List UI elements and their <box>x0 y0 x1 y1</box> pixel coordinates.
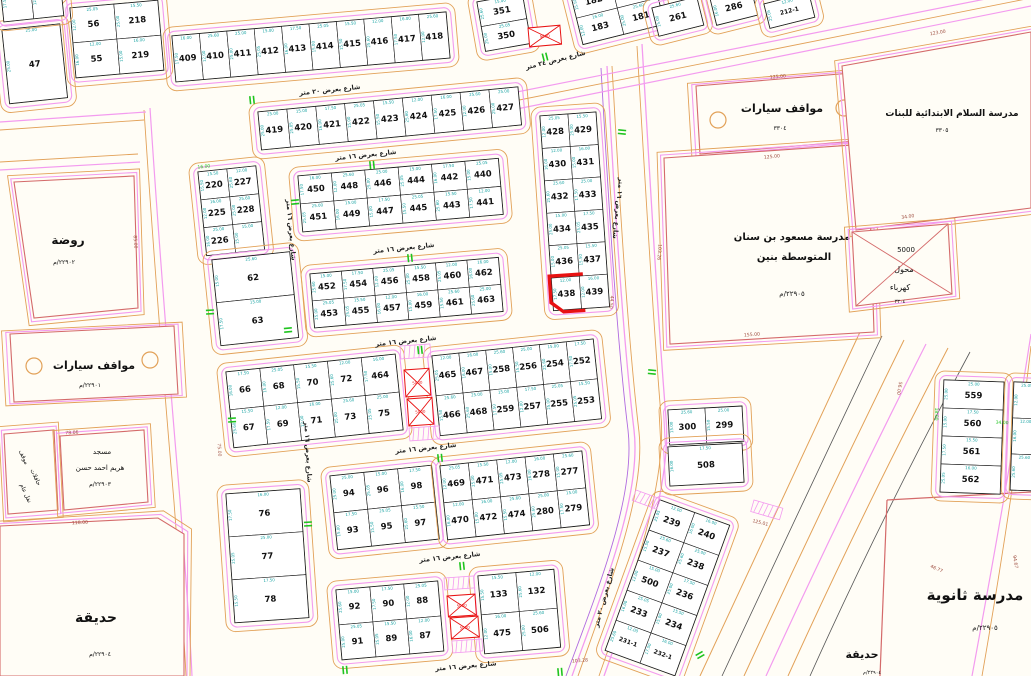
transformer-box: 5000 <box>450 616 479 639</box>
landmark-label: هريم احمد حسن <box>76 464 125 472</box>
plot-77[interactable]: 25.0025.0577 <box>229 532 306 580</box>
dim-label: 16.00 <box>399 15 411 21</box>
landmark-label: مدرسة ثانوية <box>927 586 1024 604</box>
plot-299[interactable]: 25.0015.50299 <box>705 406 744 443</box>
plot-number: 78 <box>264 594 277 605</box>
plot-446[interactable]: 25.0025.00446 <box>365 167 401 198</box>
plot-413[interactable]: 17.5016.00413 <box>282 24 313 72</box>
plot-220[interactable]: 15.5015.50220 <box>198 169 230 200</box>
landmark-label: ٣٣٠٤ <box>774 125 787 132</box>
plot-474[interactable]: 25.6015.50474 <box>501 494 533 534</box>
landmark-label: ٢٢٩٠٥/م <box>779 290 805 298</box>
plot-91[interactable]: 25.0525.0091 <box>339 622 376 660</box>
plot-87[interactable]: 12.0016.0087 <box>407 616 444 654</box>
plot-72[interactable]: 12.0025.6072 <box>327 358 365 399</box>
plot-number: 95 <box>380 521 393 532</box>
plot-255[interactable]: 25.0525.00255 <box>544 382 575 425</box>
landmark-transformer-station[interactable]: 5000محولكهرباء٣٣٠٤ <box>844 218 959 312</box>
plot-number: 422 <box>352 116 371 128</box>
plot-number: 473 <box>504 472 523 484</box>
plot-number: 457 <box>383 303 402 315</box>
dim-label: 25.00 <box>376 169 388 175</box>
plot-420[interactable]: 15.0025.05420 <box>287 106 320 147</box>
dim-label: 17.50 <box>699 445 711 451</box>
plot-444[interactable]: 15.0025.05444 <box>398 164 434 195</box>
dim-label: 15.50 <box>233 595 239 607</box>
plot-442[interactable]: 17.5016.00442 <box>431 161 467 192</box>
plot-number: 71 <box>310 415 323 426</box>
plot-417[interactable]: 16.0017.50417 <box>391 14 422 62</box>
plot-434[interactable]: 15.0025.00434 <box>547 211 577 245</box>
dim-label: 25.60 <box>1019 455 1031 460</box>
plot-number: 453 <box>320 308 339 320</box>
plot-435[interactable]: 17.5025.05435 <box>575 209 605 243</box>
plot-475[interactable]: 16.0012.00475 <box>481 612 522 654</box>
dim-label: 17.50 <box>290 25 302 31</box>
plot-69[interactable]: 12.0017.5069 <box>264 403 302 444</box>
plot-number: 560 <box>963 419 981 430</box>
dim-label: 12.00 <box>1013 394 1018 406</box>
plot-number: 256 <box>519 361 538 373</box>
plot-457[interactable]: 12.0016.00457 <box>375 293 409 323</box>
plot-280[interactable]: 25.0025.60280 <box>529 491 561 531</box>
dim-label: 15.00 <box>262 27 274 33</box>
plot-number: 92 <box>348 602 361 613</box>
plot-278[interactable]: 16.0016.00278 <box>525 454 557 494</box>
dim-label: 25.60 <box>337 601 343 613</box>
plot-253[interactable]: 15.5025.05253 <box>570 379 601 422</box>
landmark-parking-west[interactable]: مواقف سيارات٢٢٩٠١/م <box>2 322 187 406</box>
green-dim: 18.00 <box>933 408 939 421</box>
dim-label: 12.00 <box>372 18 384 24</box>
plot-89[interactable]: 15.5025.0589 <box>373 619 410 657</box>
plot-number: 508 <box>697 460 715 471</box>
dim-label: 25.05 <box>322 299 334 305</box>
landmark-garden-southwest[interactable]: حديقة٢٢٩٠٤/م <box>0 511 192 676</box>
plot-number: 420 <box>294 122 313 134</box>
landmark-label: كهرباء <box>890 283 911 292</box>
plot-number: 561 <box>962 447 980 458</box>
transformer-box: 5000 <box>528 25 562 47</box>
plot-470[interactable]: 12.0016.00470 <box>444 500 476 540</box>
dim-label: 25.00 <box>365 178 371 190</box>
plot-415[interactable]: 15.5015.50415 <box>336 19 367 67</box>
plot-number: 458 <box>412 273 431 285</box>
plot-472[interactable]: 16.0015.00472 <box>472 497 504 537</box>
map-canvas[interactable]: روضة٢٢٩٠٢/ممواقف سيارات٢٢٩٠١/مموقفحافلات… <box>0 0 1031 676</box>
plot-93[interactable]: 17.5015.0093 <box>334 509 372 549</box>
dim-label: 25.05 <box>230 552 236 564</box>
plot-number: 471 <box>475 475 494 487</box>
plot-432[interactable]: 25.6025.60432 <box>545 179 575 213</box>
dim-label: 12.00 <box>551 147 563 153</box>
plot-464[interactable]: 16.0017.50464 <box>361 354 399 395</box>
plot-number: 219 <box>131 50 150 62</box>
dim-label: 12.00 <box>529 571 541 577</box>
dim-label: 25.05 <box>86 6 98 12</box>
dim-label: 17.50 <box>378 196 390 202</box>
plot-47[interactable]: 25.0025.0047 <box>2 24 67 104</box>
dim-label: 12.00 <box>478 188 490 194</box>
plot-418[interactable]: 25.6012.00418 <box>419 12 450 60</box>
dim-label: 12.00 <box>560 277 572 283</box>
plot-277[interactable]: 25.6015.00277 <box>553 451 585 491</box>
plot-67[interactable]: 15.5025.6067 <box>230 406 268 447</box>
plot-number: 452 <box>318 281 337 293</box>
plot-219[interactable]: 16.0015.00219 <box>117 35 164 74</box>
dim-label: 15.50 <box>576 113 588 119</box>
plot-number: 89 <box>385 633 398 644</box>
plot-414[interactable]: 25.0515.00414 <box>309 22 340 70</box>
transformer-label: 5000 <box>415 409 426 415</box>
plot-number: 91 <box>351 636 364 647</box>
plot-76[interactable]: 16.0017.5076 <box>226 489 303 537</box>
plot-number: 434 <box>553 224 571 235</box>
plot-number: 475 <box>493 628 512 640</box>
plot-number: 449 <box>343 209 362 221</box>
dim-label: 25.05 <box>476 160 488 166</box>
plot-96[interactable]: 15.0025.0596 <box>364 469 402 509</box>
plot-454[interactable]: 17.5017.50454 <box>341 269 375 299</box>
plot-cell: 25.6025.60 <box>1010 454 1031 491</box>
plot-number: 459 <box>414 300 433 312</box>
plot-70[interactable]: 15.5015.5070 <box>294 361 332 402</box>
plot-227[interactable]: 12.0025.60227 <box>227 166 259 197</box>
landmark-label: ٢٢٩٠١/م <box>79 382 101 389</box>
dim-label: 25.00 <box>520 624 526 636</box>
plot-number: 417 <box>398 34 417 46</box>
plot-425[interactable]: 16.0017.50425 <box>431 93 464 134</box>
plot-number: 432 <box>551 192 569 203</box>
dim-label: 15.00 <box>555 212 567 218</box>
dim-label: 25.05 <box>548 115 560 121</box>
plot-258[interactable]: 25.6015.00258 <box>486 348 517 391</box>
dim-label: 16.00 <box>965 465 977 470</box>
dim-label: 25.00 <box>115 15 121 27</box>
dim-label: 25.05 <box>350 623 362 629</box>
plot-463[interactable]: 25.0025.60463 <box>469 284 503 314</box>
plot-445[interactable]: 25.0515.50445 <box>401 192 437 223</box>
plot-number: 226 <box>210 235 229 247</box>
plot-number: 96 <box>376 485 389 496</box>
plot-437[interactable]: 15.5015.50437 <box>577 242 607 276</box>
plot-number: 442 <box>440 172 459 184</box>
plot-300[interactable]: 25.6015.00300 <box>668 408 707 445</box>
dim-label: 25.00 <box>968 381 980 386</box>
plot-228[interactable]: 25.6025.00228 <box>230 194 262 225</box>
plot-number: 409 <box>179 53 198 65</box>
dim-label: 15.50 <box>491 574 503 580</box>
plot-424[interactable]: 12.0025.60424 <box>402 95 435 136</box>
landmark-label: ٣٣٠٥ <box>936 127 949 134</box>
plot-409[interactable]: 16.0017.50409 <box>172 34 203 82</box>
dim-label: 17.50 <box>342 278 348 290</box>
plot-number: 90 <box>382 599 395 610</box>
dim-label: 16.00 <box>376 302 382 314</box>
dim-label: 15.00 <box>345 199 357 205</box>
plot-number: 438 <box>557 289 575 300</box>
plot-508[interactable]: 17.5016.00508 <box>668 443 744 486</box>
plot-number: 257 <box>523 401 542 413</box>
plot-number: 464 <box>371 370 390 382</box>
plot-433[interactable]: 25.0017.50433 <box>572 177 602 211</box>
plot-429[interactable]: 15.5025.00429 <box>568 112 598 146</box>
dim-label: 25.00 <box>943 388 948 400</box>
plot-number: 255 <box>550 398 569 410</box>
dim-label: 15.00 <box>409 166 421 172</box>
plot-462[interactable]: 16.0016.00462 <box>467 258 501 288</box>
plot-number: 225 <box>208 207 227 219</box>
landmark-label: مسجد <box>93 448 111 456</box>
dim-label: 15.50 <box>585 243 597 249</box>
plot-number: 469 <box>447 478 466 490</box>
plot-number: 412 <box>261 46 280 58</box>
dim-label: 16.00 <box>74 54 80 66</box>
dim-label: 15.50 <box>966 437 978 442</box>
plot-431[interactable]: 16.0015.00431 <box>570 145 600 179</box>
plot-number: 220 <box>205 180 224 192</box>
dim-label: 25.05 <box>317 23 329 29</box>
plot-132[interactable]: 12.0025.60132 <box>516 569 557 611</box>
plot-number: 466 <box>442 409 461 421</box>
plot-number: 280 <box>536 506 555 518</box>
dim-label: 12.00 <box>483 628 489 640</box>
plot-428[interactable]: 25.0512.00428 <box>540 114 570 148</box>
plot-426[interactable]: 25.6012.00426 <box>460 90 493 131</box>
plot-279[interactable]: 15.0017.50279 <box>557 488 589 528</box>
plot-number: 465 <box>438 370 457 382</box>
plot-number: 440 <box>474 169 493 181</box>
dim-label: 16.00 <box>408 630 414 642</box>
dim-label: 15.00 <box>942 416 947 428</box>
dim-label: 12.00 <box>446 262 458 268</box>
plot-number: 69 <box>276 419 289 430</box>
plot-459[interactable]: 16.0015.00459 <box>406 290 440 320</box>
plot-number: 445 <box>409 203 428 215</box>
green-dim: 34.00 <box>995 420 1008 426</box>
plot-66[interactable]: 17.5016.0066 <box>226 368 264 409</box>
plot-218[interactable]: 15.5025.00218 <box>114 0 161 39</box>
plot-466[interactable]: 25.6015.50466 <box>436 393 467 436</box>
plot-number: 439 <box>585 287 603 298</box>
plot-cell: 16.0017.50 <box>0 0 34 22</box>
plot-number: 419 <box>265 125 284 137</box>
dim-label: 16.00 <box>432 172 438 184</box>
dim-label: 25.60 <box>448 288 460 294</box>
plot-number: 424 <box>409 111 428 123</box>
dim-label: 17.50 <box>227 509 233 521</box>
plot-88[interactable]: 25.0512.0088 <box>404 581 441 619</box>
landmark-label: حديقة <box>75 610 117 626</box>
plot-cell: 25.0512.00 <box>1013 382 1031 419</box>
plot-number: 72 <box>340 374 353 385</box>
plot-421[interactable]: 17.5016.00421 <box>316 104 349 145</box>
plot-number: 410 <box>206 51 225 63</box>
plot-90[interactable]: 17.5017.5090 <box>370 584 407 622</box>
plot-226[interactable]: 25.0016.00226 <box>204 225 236 256</box>
dim-label: 25.00 <box>340 636 346 648</box>
plot-562[interactable]: 16.0025.05562 <box>940 464 1001 494</box>
plot-number: 66 <box>239 385 252 396</box>
plot-225[interactable]: 16.0012.00225 <box>201 197 233 228</box>
plot-559[interactable]: 25.0025.00559 <box>943 380 1004 410</box>
block-559[interactable]: 25.0025.0055917.5015.0056015.5017.505611… <box>931 371 1013 504</box>
plot-440[interactable]: 25.0515.00440 <box>465 158 501 189</box>
plot-456[interactable]: 25.0512.00456 <box>373 266 407 296</box>
plot-number: 77 <box>261 551 274 562</box>
plot-257[interactable]: 17.5012.00257 <box>517 384 548 427</box>
plot-number: 461 <box>446 297 465 309</box>
plot-439[interactable]: 16.0012.00439 <box>579 274 609 308</box>
dim-label: 16.00 <box>588 275 600 281</box>
landmark-bus-stop[interactable]: موقفحافلاتنقل عام <box>0 422 63 522</box>
plot-561[interactable]: 15.5017.50561 <box>941 436 1002 466</box>
plot-number: 254 <box>546 358 565 370</box>
dim-label: 15.00 <box>407 300 413 312</box>
landmark-label: مدرسة مسعود بن سنان <box>734 232 850 243</box>
plot-471[interactable]: 15.5025.00471 <box>468 460 500 500</box>
plot-468[interactable]: 25.0025.60468 <box>463 390 494 433</box>
plot-94[interactable]: 25.0025.0094 <box>330 472 368 512</box>
boundary-dim: 103.26 <box>655 244 662 261</box>
landmark-mosque[interactable]: مسجدهريم احمد حسن٢٢٩٠٣/م <box>53 424 155 517</box>
landmark-label: ٢٢٩٠٤/م <box>863 670 882 676</box>
plot-62[interactable]: 25.6015.0062 <box>212 252 294 303</box>
plot-410[interactable]: 25.6012.00410 <box>199 31 230 79</box>
dim-label: 25.60 <box>427 13 439 19</box>
dim-label: 12.00 <box>332 180 338 192</box>
plot-443[interactable]: 15.5025.60443 <box>434 189 470 220</box>
dim-label: 12.00 <box>385 294 397 300</box>
dim-label: 15.50 <box>414 264 426 270</box>
plot-449[interactable]: 15.0016.00449 <box>334 198 370 229</box>
plot-number: 253 <box>577 395 596 407</box>
dim-label: 25.60 <box>207 32 219 38</box>
dim-label: 15.00 <box>118 50 124 62</box>
plot-416[interactable]: 12.0025.60416 <box>364 17 395 65</box>
dim-label: 16.00 <box>578 145 590 151</box>
plot-461[interactable]: 25.6015.50461 <box>438 287 472 317</box>
plot-423[interactable]: 15.5015.50423 <box>373 98 406 139</box>
plot-422[interactable]: 25.0515.00422 <box>345 101 378 142</box>
dim-label: 15.50 <box>384 620 396 626</box>
boundary-dim: 155.00 <box>744 331 761 338</box>
plot-452[interactable]: 15.0025.60452 <box>310 271 344 301</box>
dim-label: 17.50 <box>443 163 455 169</box>
plot-133[interactable]: 15.5015.50133 <box>478 573 519 615</box>
map-viewport[interactable]: روضة٢٢٩٠٢/ممواقف سيارات٢٢٩٠١/مموقفحافلات… <box>0 0 1031 676</box>
plot-453[interactable]: 25.0525.00453 <box>312 298 346 328</box>
plot-441[interactable]: 12.0017.50441 <box>467 186 503 217</box>
dim-label: 25.60 <box>533 610 545 616</box>
plot-419[interactable]: 25.0025.00419 <box>258 109 291 150</box>
dim-label: 17.50 <box>299 183 305 195</box>
plot-number: 67 <box>243 422 256 433</box>
plot-number: 56 <box>87 19 100 30</box>
plot-number: 446 <box>373 178 392 190</box>
plot-467[interactable]: 16.0016.00467 <box>459 350 490 393</box>
plot-427[interactable]: 25.0025.00427 <box>489 87 522 128</box>
dim-label: 15.50 <box>344 20 356 26</box>
dim-label: 16.00 <box>309 174 321 180</box>
plot-92[interactable]: 15.0025.6092 <box>336 587 373 625</box>
plot-number: 300 <box>678 422 696 433</box>
plot-95[interactable]: 25.0515.5095 <box>368 506 406 546</box>
plot-447[interactable]: 17.5015.00447 <box>367 195 403 226</box>
plot-450[interactable]: 16.0017.50450 <box>298 173 334 204</box>
plot-97[interactable]: 15.5025.6097 <box>401 502 439 542</box>
dim-label: 25.05 <box>383 267 395 273</box>
plot-number: 278 <box>532 469 551 481</box>
plot-63[interactable]: 15.0017.5063 <box>216 295 298 346</box>
plot-259[interactable]: 15.0017.50259 <box>490 387 521 430</box>
plot-412[interactable]: 15.0025.05412 <box>254 26 285 74</box>
plot-number: 94 <box>343 488 356 499</box>
dim-label: 25.00 <box>313 308 319 320</box>
plot-465[interactable]: 12.0025.05465 <box>432 353 463 396</box>
plot-451[interactable]: 25.0025.05451 <box>300 201 336 232</box>
dim-label: 12.00 <box>1020 419 1031 424</box>
plot-455[interactable]: 15.5025.05455 <box>344 295 378 325</box>
plot-460[interactable]: 12.0025.05460 <box>436 260 470 290</box>
plot-506[interactable]: 25.6025.00506 <box>519 608 560 650</box>
plot-469[interactable]: 25.0512.00469 <box>440 463 472 503</box>
plot-560[interactable]: 17.5015.00560 <box>942 408 1003 438</box>
dim-label: 15.00 <box>368 205 374 217</box>
plot-number: 259 <box>496 404 515 416</box>
plot-430[interactable]: 12.0016.00430 <box>542 146 572 180</box>
plot-73[interactable]: 25.6025.0073 <box>331 396 369 437</box>
landmark-label: ٢٢٩٠٣/م <box>89 481 112 488</box>
plot-411[interactable]: 25.0025.00411 <box>227 29 258 77</box>
plot-number: 456 <box>380 276 399 288</box>
plot-473[interactable]: 12.0025.05473 <box>497 457 529 497</box>
plot-number: 93 <box>346 525 359 536</box>
dim-label: 25.00 <box>260 534 272 540</box>
plot-256[interactable]: 25.0015.50256 <box>513 345 544 388</box>
plot-number: 472 <box>479 512 498 524</box>
plot-75[interactable]: 25.0025.0575 <box>365 392 403 433</box>
plot-number: 97 <box>414 518 427 529</box>
dim-label: 12.00 <box>373 275 379 287</box>
plot-448[interactable]: 25.6012.00448 <box>331 170 367 201</box>
plot-56[interactable]: 25.0512.0056 <box>70 4 117 43</box>
plot-252[interactable]: 17.5017.50252 <box>566 339 597 382</box>
plot-68[interactable]: 25.0515.0068 <box>260 365 298 406</box>
plot-55[interactable]: 12.0016.0055 <box>73 39 120 78</box>
dim-label: 16.00 <box>669 460 675 472</box>
plot-number: 413 <box>288 43 307 55</box>
dim-label: 25.05 <box>344 305 350 317</box>
plot-458[interactable]: 15.5025.00458 <box>404 263 438 293</box>
dim-label: 17.50 <box>468 197 474 209</box>
dim-label: 16.00 <box>133 37 145 43</box>
plot-78[interactable]: 17.5015.5078 <box>232 575 309 623</box>
plot-number: 133 <box>489 589 508 601</box>
plot-number: 299 <box>715 420 733 431</box>
plot-98[interactable]: 17.5016.0098 <box>398 465 436 505</box>
dim-label: 12.00 <box>405 595 411 607</box>
plot-254[interactable]: 15.0025.60254 <box>539 342 570 385</box>
dim-label: 25.05 <box>940 472 945 484</box>
dim-label: 15.00 <box>669 421 675 433</box>
dim-label: 25.00 <box>479 286 491 292</box>
boundary-dim: 103.28 <box>572 657 589 664</box>
plot-number: 427 <box>496 103 515 115</box>
plot-number: 444 <box>407 175 426 187</box>
plot-number: 467 <box>465 367 484 379</box>
dim-label: 25.05 <box>436 270 442 282</box>
